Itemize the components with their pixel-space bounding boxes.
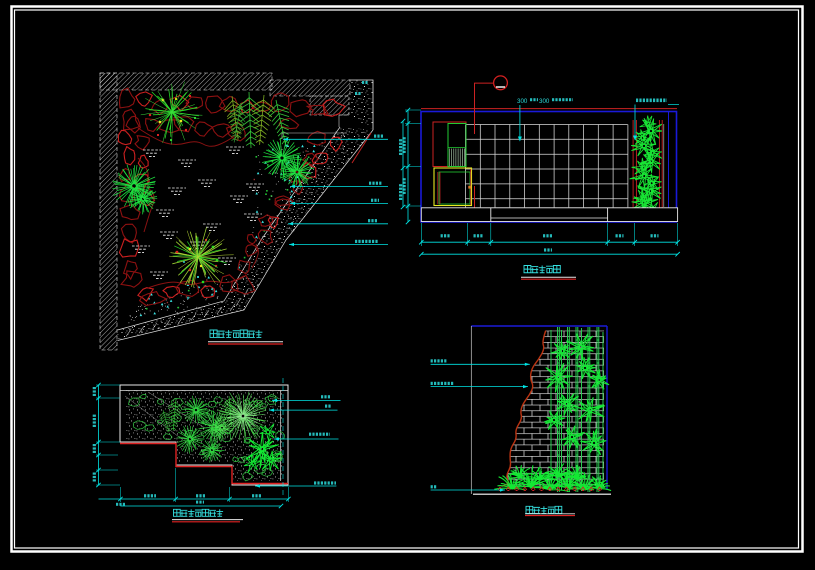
svg-text:300: 300	[517, 98, 528, 105]
svg-text:300: 300	[539, 98, 550, 105]
